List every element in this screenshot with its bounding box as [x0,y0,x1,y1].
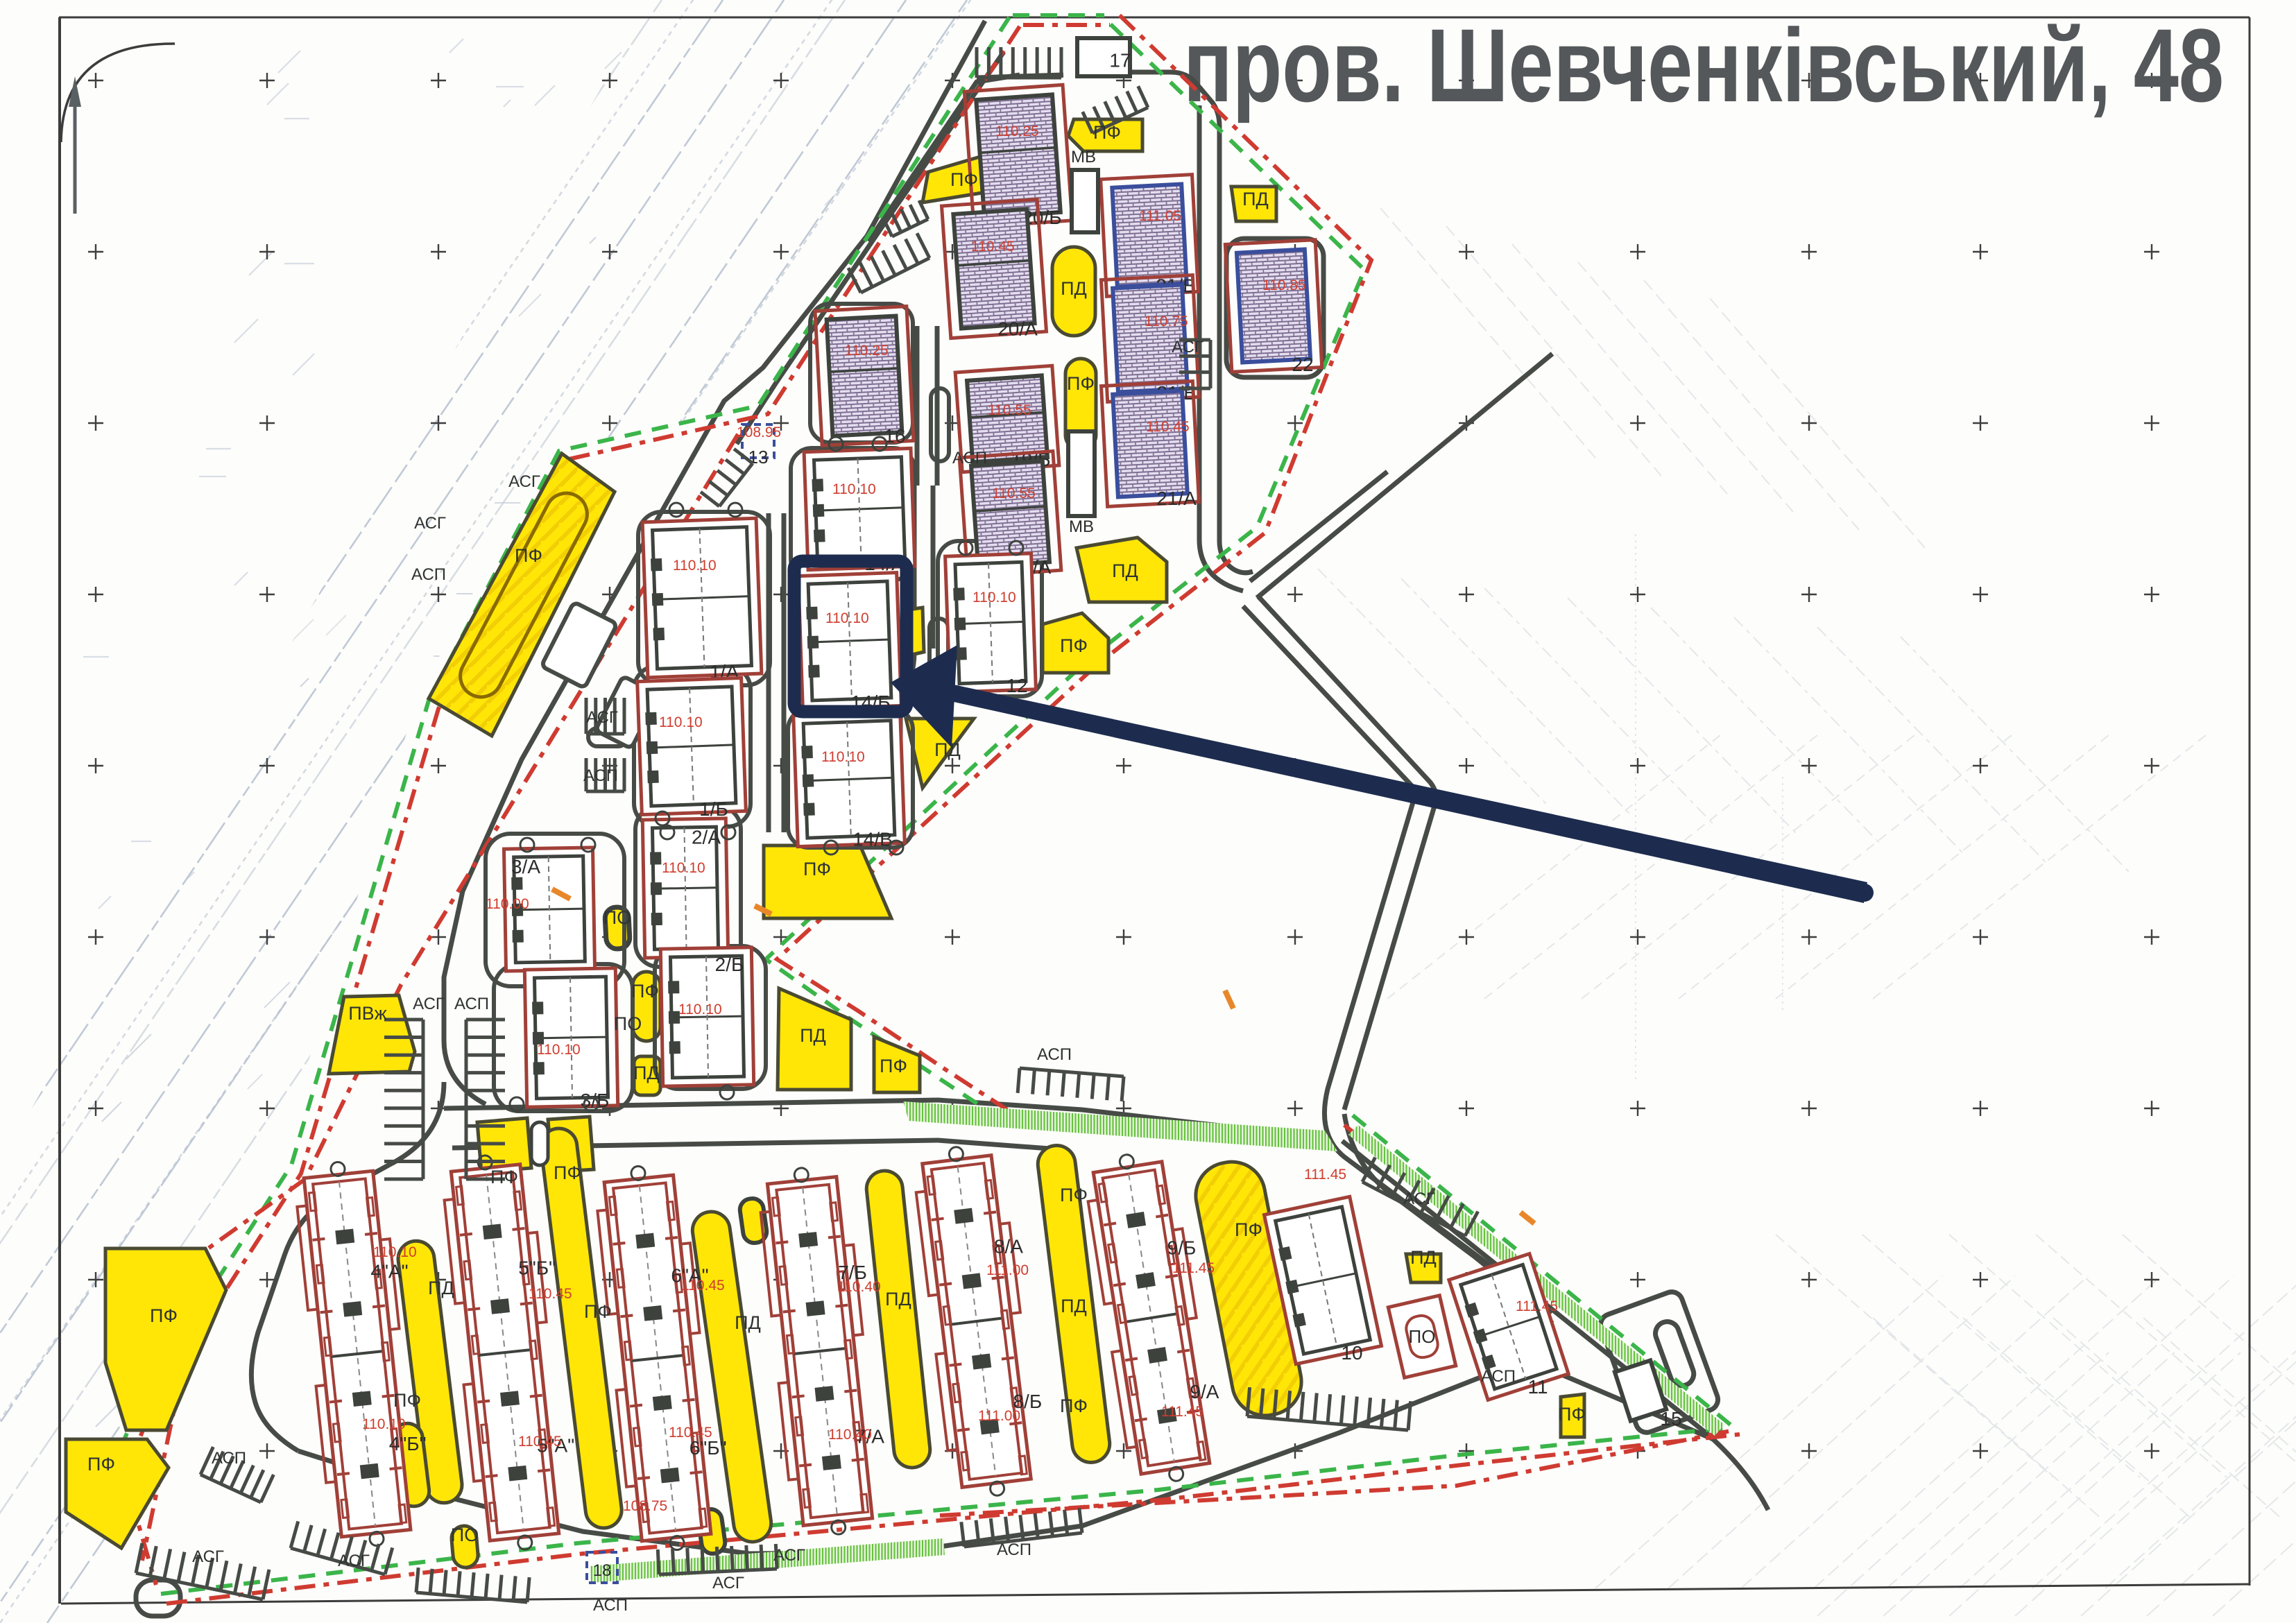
svg-text:ПФ: ПФ [1067,373,1095,394]
svg-text:АСГ: АСГ [1172,338,1203,357]
svg-text:110.45: 110.45 [681,1278,725,1294]
svg-text:10: 10 [1341,1342,1362,1364]
svg-text:ПД: ПД [1410,1247,1437,1268]
svg-text:АСП: АСП [411,565,446,584]
svg-text:АСП: АСП [212,1449,246,1468]
svg-text:ПД: ПД [1112,560,1138,581]
svg-text:14/В: 14/В [853,829,893,850]
svg-text:111.45: 111.45 [1172,1260,1215,1276]
svg-text:АСП: АСП [593,1596,628,1615]
svg-text:110.45: 110.45 [971,239,1015,255]
svg-text:ПФ: ПФ [584,1301,612,1322]
svg-text:АСП: АСП [454,995,489,1013]
svg-text:АСГ: АСГ [1403,1190,1435,1208]
svg-text:ПД: ПД [1061,1296,1087,1316]
svg-text:ПД: ПД [1061,278,1087,299]
svg-text:АСП: АСП [1481,1367,1516,1386]
svg-text:110.40: 110.40 [828,1427,872,1443]
svg-text:ПФ: ПФ [880,1056,907,1076]
svg-text:МВ: МВ [1071,148,1096,166]
svg-text:ПФ: ПФ [631,981,659,1002]
svg-text:11: 11 [1527,1376,1548,1398]
svg-text:пров. Шевченківський, 48: пров. Шевченківський, 48 [1183,7,2224,123]
svg-text:ПФ: ПФ [1093,122,1121,143]
svg-text:110.55: 110.55 [992,486,1036,501]
svg-text:110.10: 110.10 [673,558,717,574]
svg-text:АСГ: АСГ [338,1552,370,1570]
svg-text:2/А: 2/А [692,827,721,848]
svg-text:АСГ: АСГ [192,1547,224,1566]
svg-text:ПД: ПД [735,1312,761,1333]
svg-text:ПО: ПО [451,1525,479,1545]
svg-text:АСП: АСП [583,766,618,785]
svg-text:111.00: 111.00 [986,1262,1029,1278]
svg-text:110.45: 110.45 [518,1434,562,1450]
svg-text:ПФ: ПФ [950,169,978,190]
svg-text:ПД: ПД [1242,189,1269,209]
svg-text:21/А: 21/А [1156,488,1197,509]
svg-text:110.10: 110.10 [662,860,705,876]
svg-text:ПФ: ПФ [1060,1396,1088,1416]
svg-text:22: 22 [1292,354,1313,375]
svg-text:5"Б": 5"Б" [518,1257,556,1278]
svg-text:ПО: ПО [1409,1326,1436,1347]
svg-text:110.10: 110.10 [537,1042,581,1058]
svg-text:1/Б: 1/Б [699,798,728,820]
svg-text:ПО: ПО [614,1013,642,1034]
svg-text:АСГ: АСГ [413,995,445,1013]
svg-text:110.10: 110.10 [832,481,876,497]
svg-text:110.25: 110.25 [845,343,889,359]
svg-text:110.85: 110.85 [1262,277,1306,293]
svg-text:110.75: 110.75 [1145,314,1188,329]
svg-text:9/А: 9/А [1190,1381,1219,1402]
svg-text:110.10: 110.10 [821,749,865,765]
svg-text:111.00: 111.00 [978,1408,1020,1424]
svg-text:108.75: 108.75 [623,1498,667,1514]
svg-text:ПФ: ПФ [150,1305,178,1326]
svg-text:4"А": 4"А" [370,1261,408,1282]
svg-text:АСП: АСП [1037,1045,1072,1064]
svg-text:110.10: 110.10 [659,714,703,730]
svg-text:ПФ: ПФ [515,545,542,566]
svg-text:111.05: 111.05 [1139,208,1181,224]
svg-text:ПФ: ПФ [1060,635,1088,656]
svg-text:17: 17 [1109,50,1131,71]
svg-text:110.10: 110.10 [973,590,1016,606]
svg-text:110.45: 110.45 [1146,419,1190,435]
svg-text:ПФ: ПФ [87,1454,115,1475]
svg-text:ПФ: ПФ [1060,1185,1088,1205]
svg-text:ПО: ПО [603,907,631,928]
svg-text:ПФ: ПФ [1558,1404,1586,1425]
svg-text:110.10: 110.10 [362,1416,406,1432]
svg-text:АСП: АСП [997,1540,1031,1559]
svg-text:111.45: 111.45 [1161,1404,1203,1420]
svg-text:110.40: 110.40 [837,1279,881,1295]
svg-text:110.10: 110.10 [678,1002,722,1017]
svg-text:111.45: 111.45 [1516,1298,1558,1314]
svg-text:АСП: АСП [952,449,987,467]
svg-text:АСГ: АСГ [773,1546,805,1565]
svg-text:ПД: ПД [428,1278,454,1298]
svg-text:110.25: 110.25 [995,123,1039,139]
svg-text:ПД: ПД [800,1025,826,1046]
svg-text:ПД: ПД [885,1289,911,1309]
svg-text:ПФ: ПФ [490,1167,518,1187]
svg-text:9/Б: 9/Б [1167,1237,1197,1259]
svg-text:МВ: МВ [1069,517,1094,536]
svg-text:110.10: 110.10 [373,1244,417,1260]
svg-text:ПФ: ПФ [554,1162,581,1183]
svg-text:ПВж: ПВж [348,1003,386,1024]
svg-text:20/А: 20/А [997,318,1038,340]
svg-text:110.45: 110.45 [669,1425,712,1441]
svg-text:111.45: 111.45 [1304,1167,1346,1183]
svg-text:2/Б: 2/Б [715,954,744,975]
svg-text:108.95: 108.95 [737,424,781,440]
svg-text:ПФ: ПФ [393,1390,421,1411]
svg-text:АСГ: АСГ [414,514,446,533]
svg-text:110.00: 110.00 [486,896,529,912]
svg-text:18: 18 [593,1561,612,1580]
svg-text:8/А: 8/А [994,1236,1023,1257]
svg-text:ПФ: ПФ [803,859,831,879]
svg-text:110.45: 110.45 [529,1286,572,1302]
svg-text:АСГ: АСГ [508,472,540,491]
svg-text:15: 15 [1660,1408,1681,1429]
svg-text:110.10: 110.10 [825,610,869,626]
svg-text:АСГ: АСГ [586,708,618,727]
svg-text:12: 12 [1006,675,1027,696]
svg-text:ПД: ПД [633,1063,660,1083]
svg-text:АСГ: АСГ [712,1574,744,1592]
svg-text:ПФ: ПФ [1235,1219,1262,1240]
svg-text:4"Б": 4"Б" [389,1433,427,1454]
svg-text:3/А: 3/А [511,856,540,877]
svg-text:110.55: 110.55 [988,402,1031,418]
